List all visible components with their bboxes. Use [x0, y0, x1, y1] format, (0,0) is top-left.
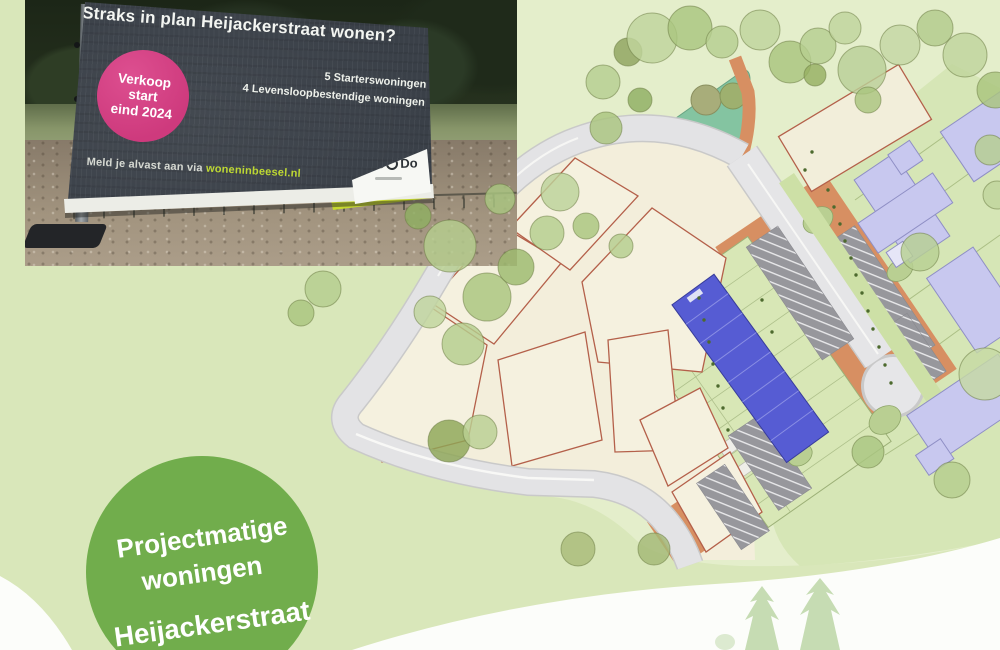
flyer-page: Straks in plan Heijackerstraat wonen? Ve… [0, 0, 1000, 650]
wave-left [0, 576, 72, 650]
wave-right [352, 538, 1000, 650]
